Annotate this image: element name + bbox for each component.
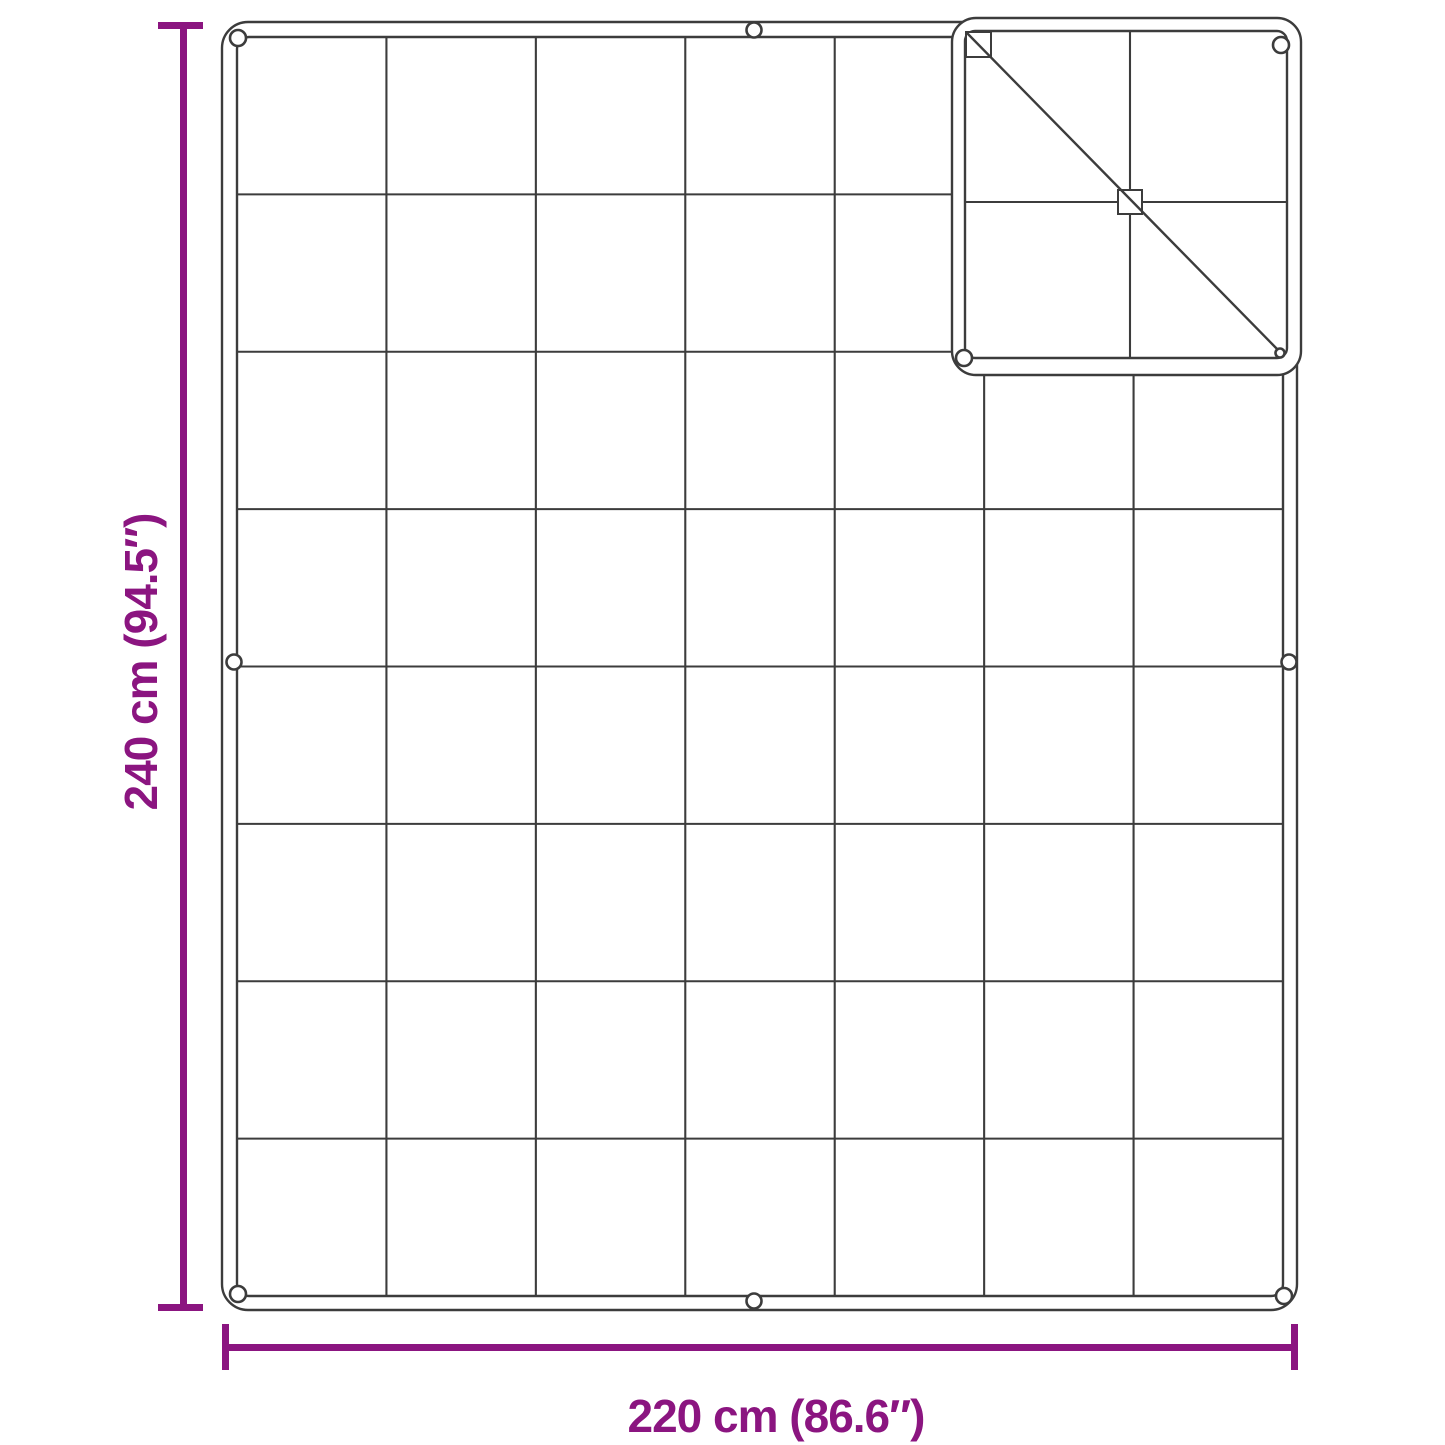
- dimension-diagram-svg: 240 cm (94.5″) 220 cm (86.6″): [0, 0, 1445, 1445]
- fold-center-square: [1118, 190, 1142, 214]
- eyelet: [1276, 1288, 1292, 1304]
- eyelet: [230, 1286, 246, 1302]
- eyelet: [1282, 655, 1297, 670]
- width-dimension: 220 cm (86.6″): [222, 1324, 1298, 1442]
- height-dimension-line: [180, 25, 187, 1308]
- width-dimension-line: [225, 1344, 1295, 1351]
- height-dimension-label: 240 cm (94.5″): [115, 514, 167, 811]
- height-dimension-cap-top: [158, 22, 203, 29]
- product-dimension-diagram: 240 cm (94.5″) 220 cm (86.6″): [0, 0, 1445, 1445]
- width-dimension-label: 220 cm (86.6″): [628, 1390, 925, 1442]
- folded-corner: [952, 18, 1301, 375]
- eyelet: [747, 1294, 762, 1309]
- width-dimension-cap-left: [222, 1324, 229, 1370]
- height-dimension-cap-bottom: [158, 1304, 203, 1311]
- eyelet: [1276, 349, 1285, 358]
- height-dimension: 240 cm (94.5″): [115, 22, 203, 1311]
- eyelet: [956, 350, 972, 366]
- eyelet: [1273, 37, 1289, 53]
- eyelet: [227, 655, 242, 670]
- eyelet: [230, 30, 246, 46]
- eyelet: [747, 23, 762, 38]
- width-dimension-cap-right: [1291, 1324, 1298, 1370]
